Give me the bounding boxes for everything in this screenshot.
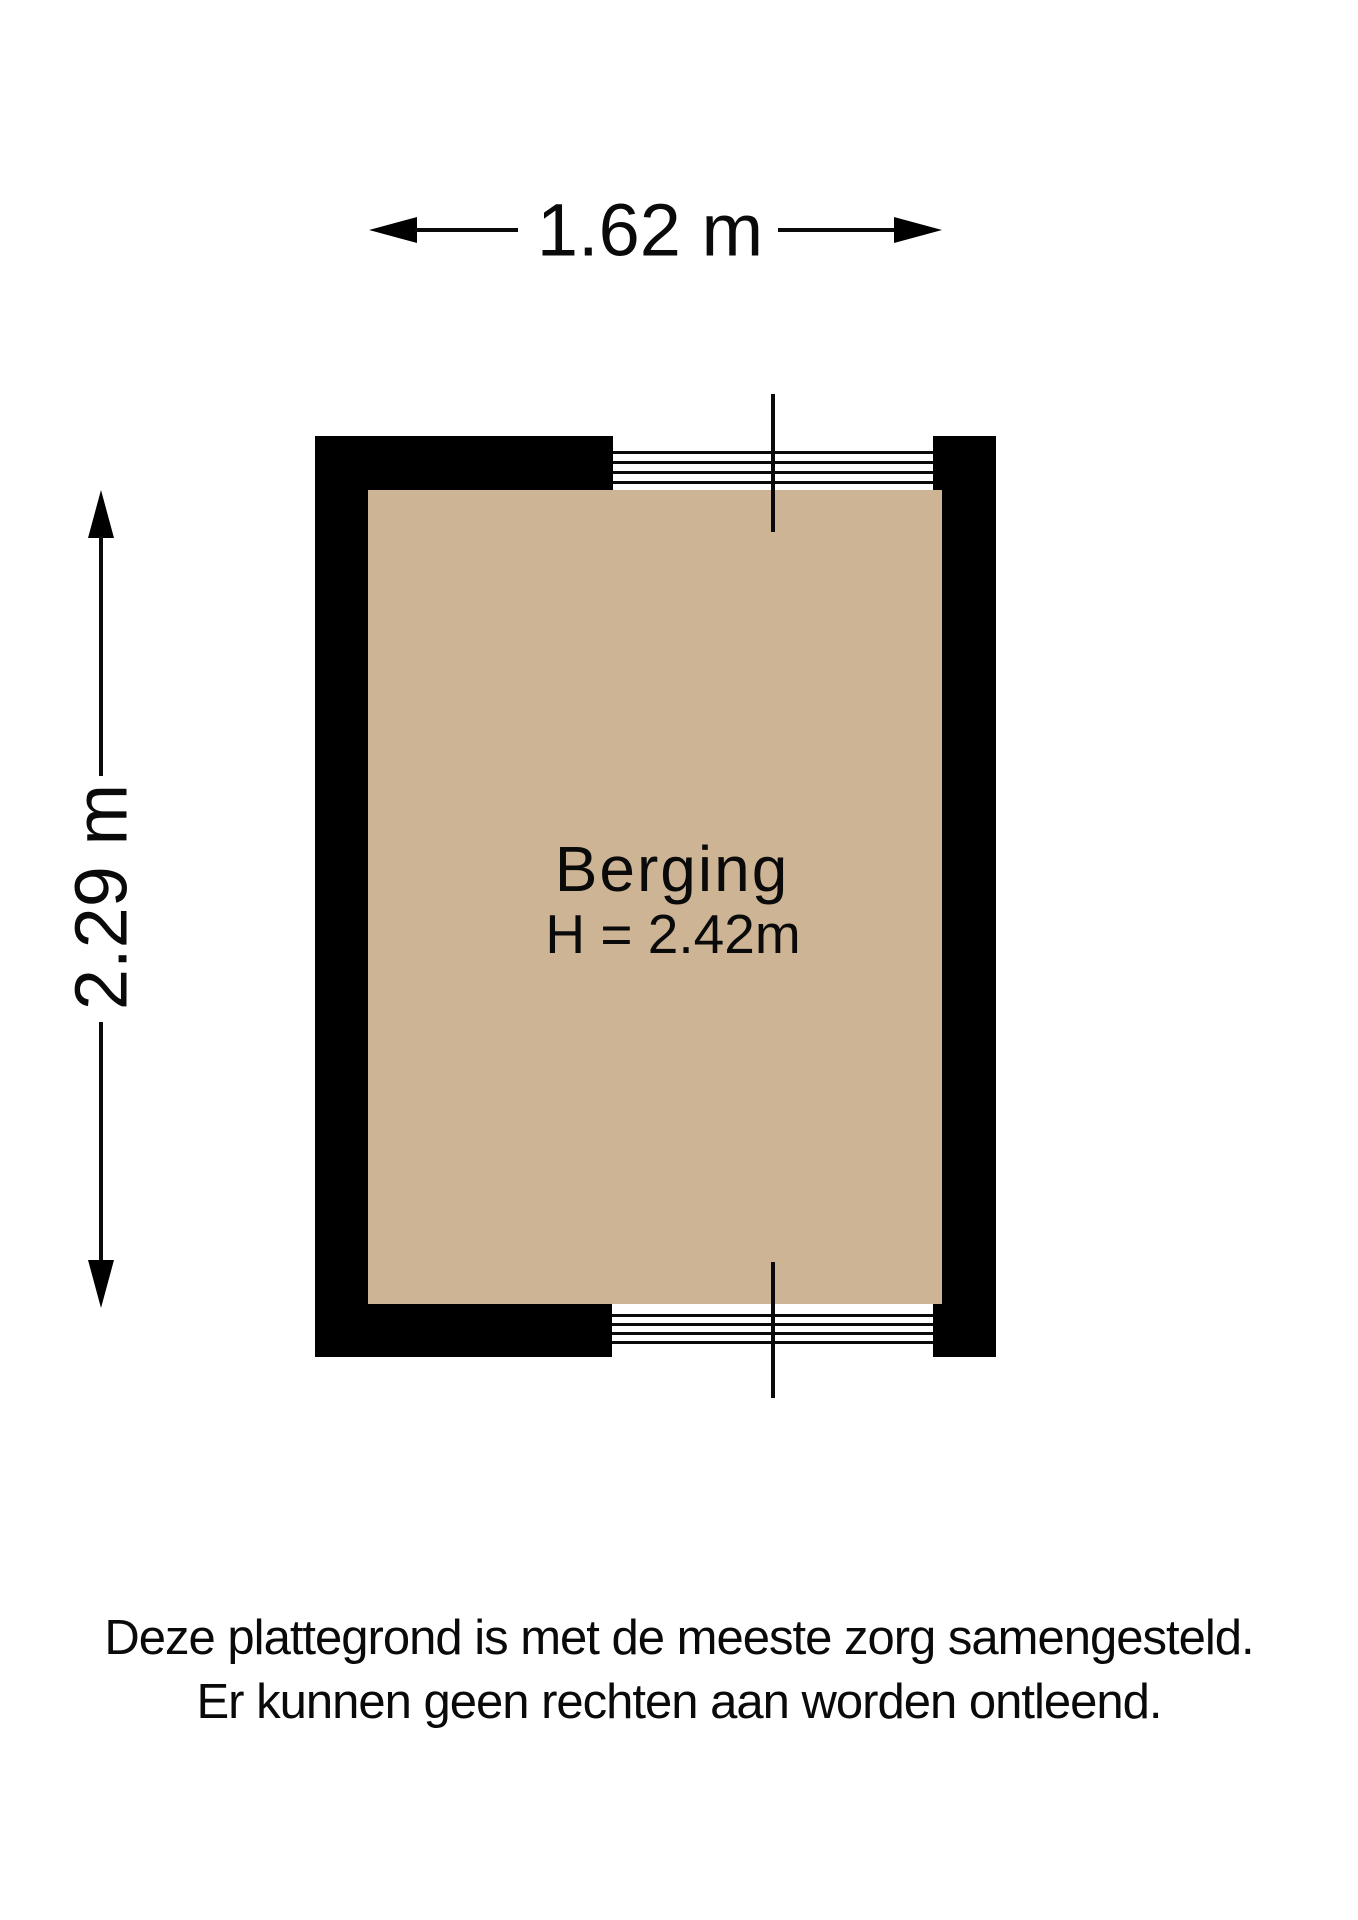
arrowhead-down-icon <box>88 1260 114 1308</box>
room-name-label: Berging <box>555 832 790 906</box>
height-dimension-label: 2.29 m <box>59 784 144 1010</box>
wall-top-left-segment <box>315 436 613 490</box>
wall-left <box>315 436 368 1357</box>
wall-bottom-right-corner <box>933 1304 996 1357</box>
dimension-line <box>778 228 896 232</box>
width-dimension-label: 1.62 m <box>537 188 763 273</box>
wall-top-right-corner <box>933 436 996 490</box>
bottom-window-center-line <box>771 1262 775 1398</box>
dimension-line <box>415 228 518 232</box>
room-ceiling-height-label: H = 2.42m <box>545 902 800 966</box>
wall-right <box>942 436 996 1357</box>
wall-bottom-left-segment <box>315 1304 612 1357</box>
dimension-line <box>99 536 103 776</box>
floor-plan-canvas: 1.62 m 2.29 m Berging H = 2.42m Deze pl <box>0 0 1358 1920</box>
disclaimer-line-1: Deze plattegrond is met de meeste zorg s… <box>0 1606 1358 1670</box>
top-window-center-line <box>771 394 775 532</box>
dimension-line <box>99 1022 103 1262</box>
arrowhead-up-icon <box>88 490 114 538</box>
disclaimer-text: Deze plattegrond is met de meeste zorg s… <box>0 1606 1358 1734</box>
arrowhead-right-icon <box>894 217 942 243</box>
disclaimer-line-2: Er kunnen geen rechten aan worden ontlee… <box>0 1670 1358 1734</box>
arrowhead-left-icon <box>369 217 417 243</box>
